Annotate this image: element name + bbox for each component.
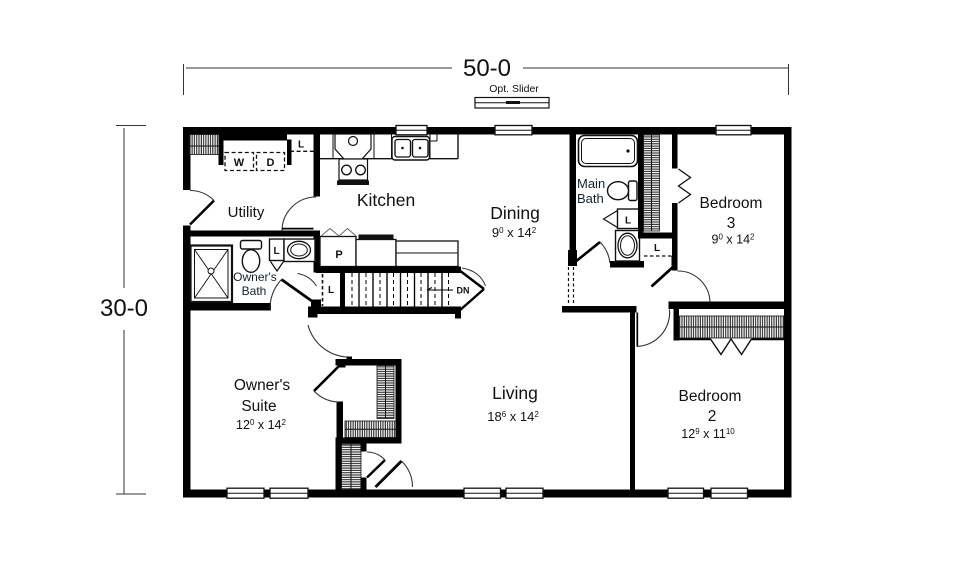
svg-text:120 x 142: 120 x 142 [236,418,286,432]
svg-text:90 x 142: 90 x 142 [492,225,537,240]
svg-text:30-0: 30-0 [100,295,148,322]
svg-text:Utility: Utility [228,204,265,221]
svg-text:Main: Main [577,176,605,191]
svg-text:3: 3 [727,215,736,232]
svg-text:L: L [328,285,334,296]
svg-text:Owner's: Owner's [233,270,277,284]
svg-text:Bedroom: Bedroom [700,195,763,212]
svg-text:186 x 142: 186 x 142 [487,409,539,424]
svg-text:P: P [335,249,342,261]
svg-text:Owner's: Owner's [234,377,291,394]
svg-text:Bath: Bath [577,191,604,206]
svg-text:W: W [234,157,245,169]
svg-text:90 x 142: 90 x 142 [712,233,756,247]
svg-text:L: L [298,140,304,151]
svg-text:Suite: Suite [241,398,276,415]
svg-text:50-0: 50-0 [463,55,511,82]
svg-text:Bath: Bath [242,284,267,298]
svg-text:L: L [625,216,631,227]
svg-text:Dining: Dining [490,203,540,223]
svg-text:DN: DN [457,286,470,296]
svg-text:L: L [654,243,660,254]
svg-text:L: L [273,246,279,257]
svg-text:Kitchen: Kitchen [357,190,415,210]
svg-text:Opt. Slider: Opt. Slider [489,83,539,95]
svg-text:2: 2 [708,408,717,425]
svg-text:D: D [267,157,275,169]
svg-text:Living: Living [492,383,538,403]
svg-text:Bedroom: Bedroom [679,388,742,405]
